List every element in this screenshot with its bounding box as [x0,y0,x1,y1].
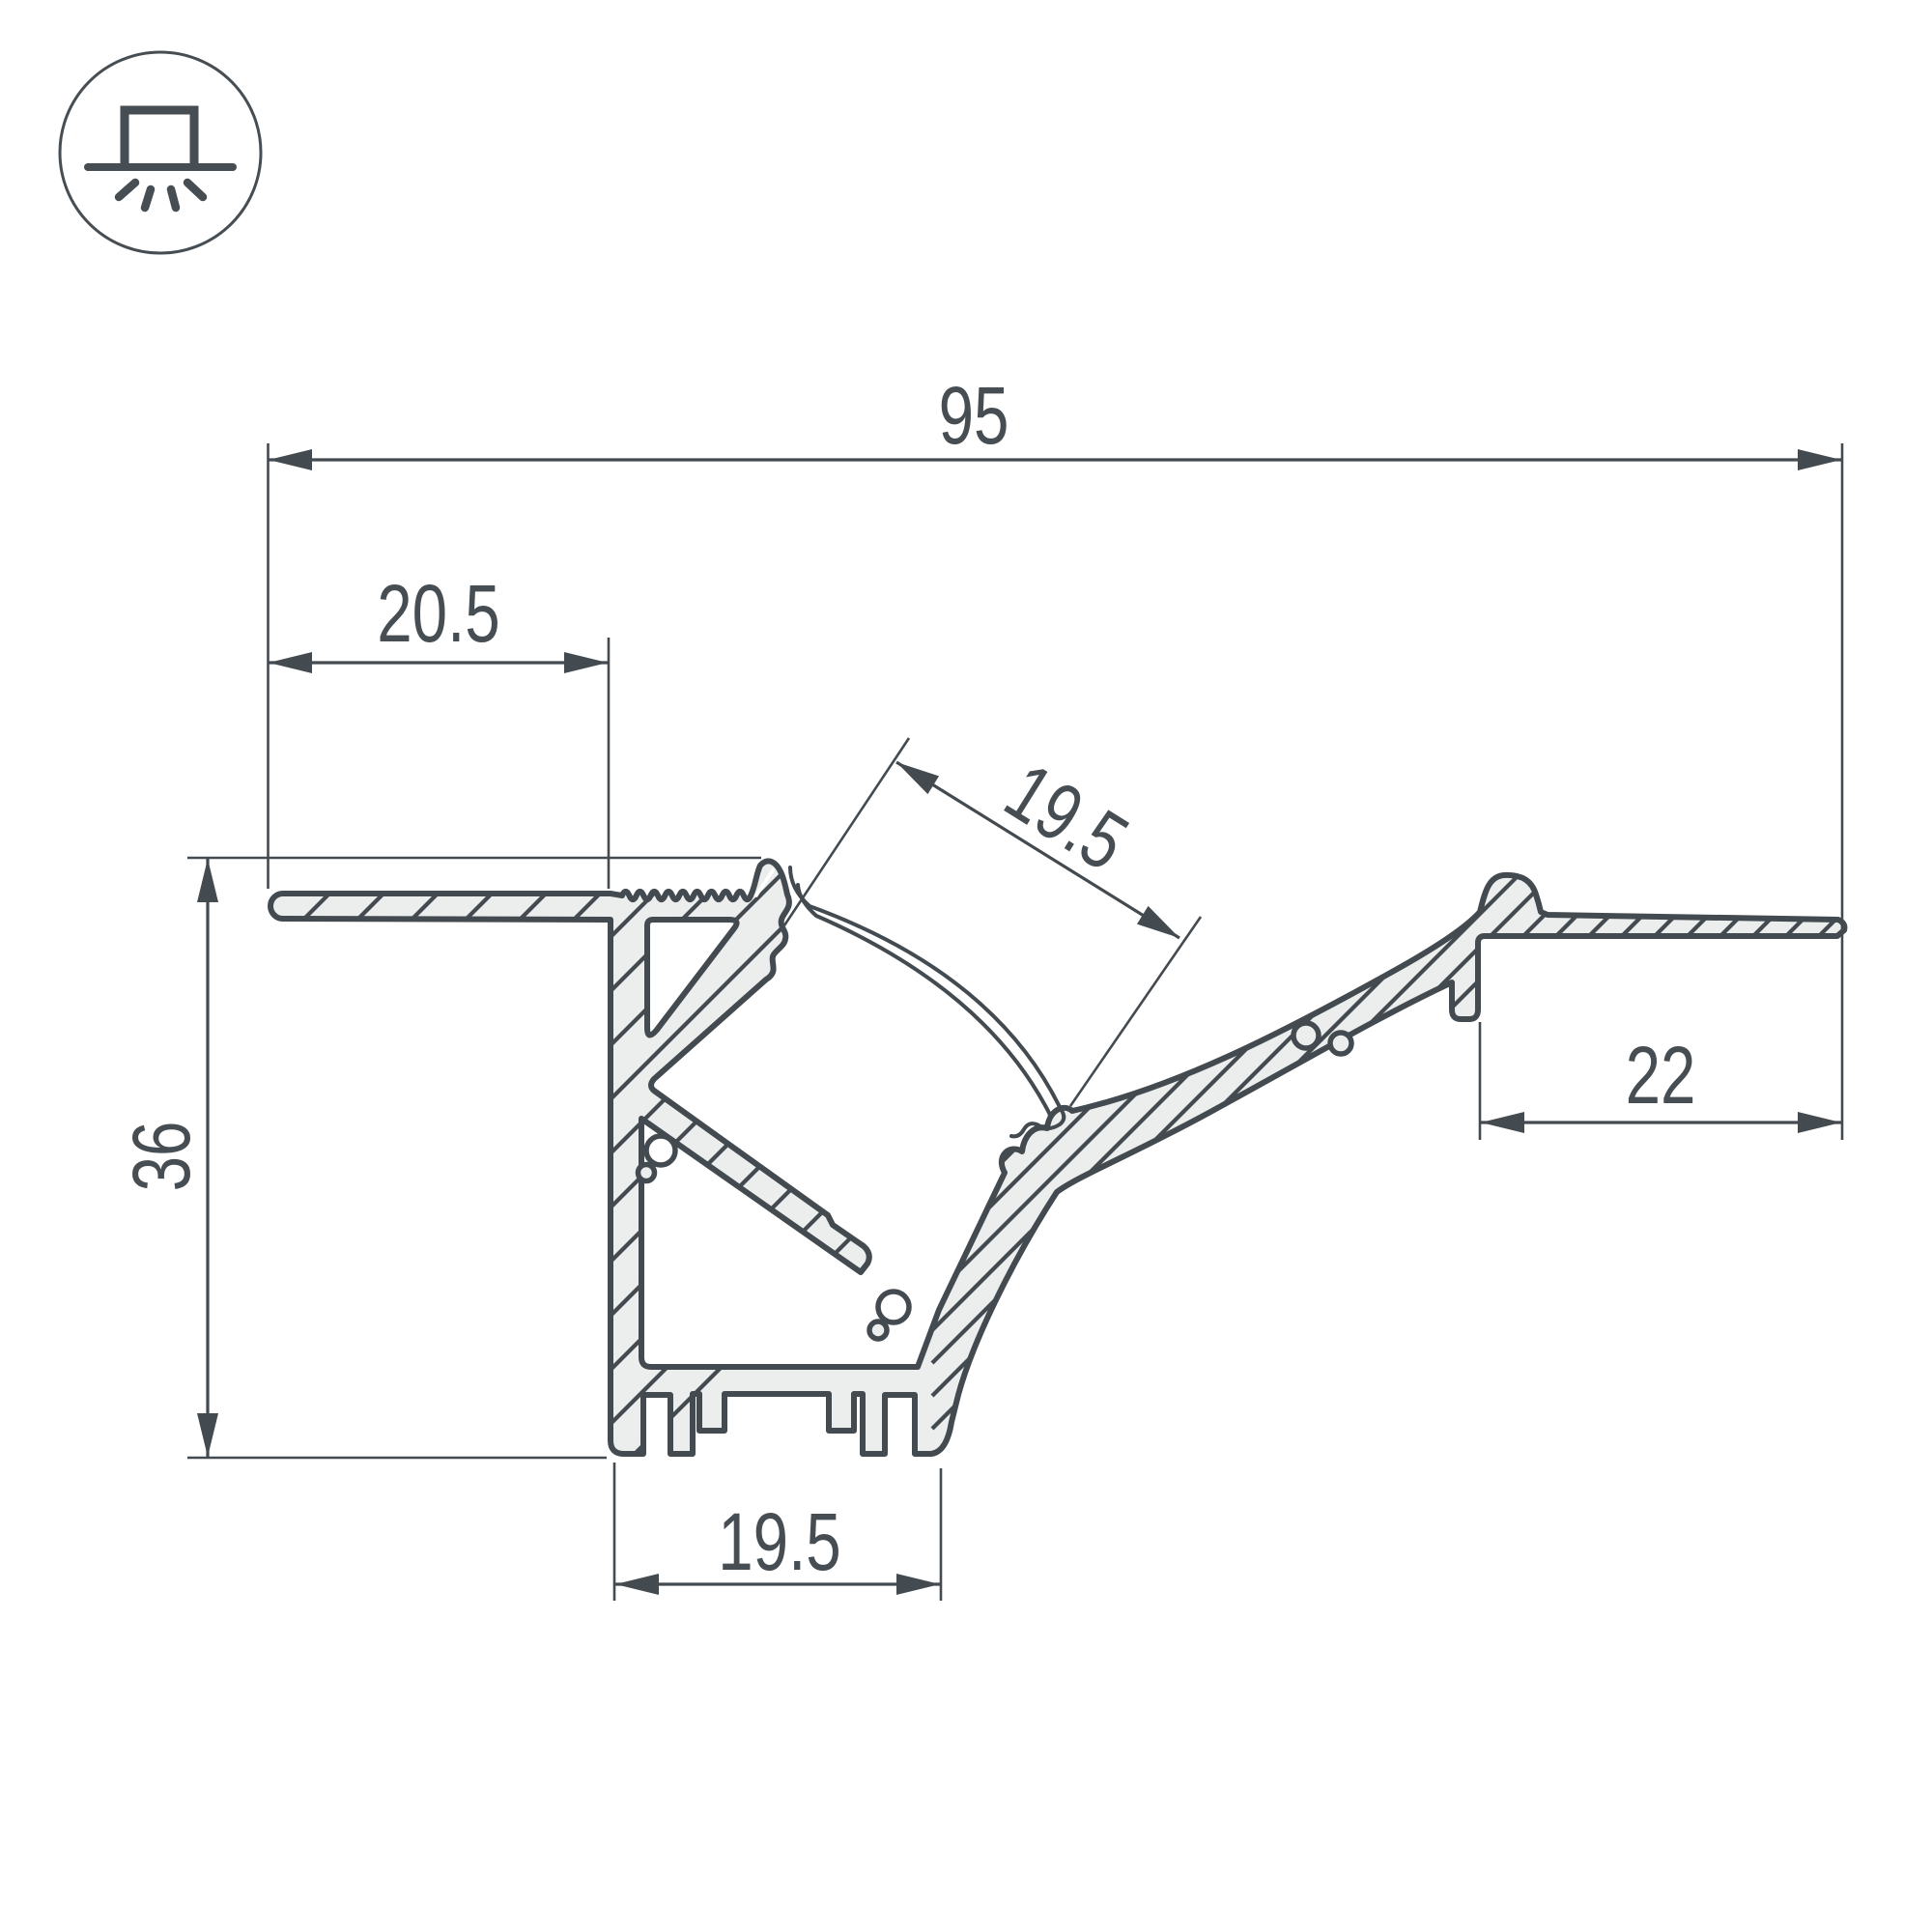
svg-text:95: 95 [939,370,1009,461]
svg-text:22: 22 [1626,1030,1696,1121]
svg-text:19.5: 19.5 [718,1496,841,1587]
svg-text:20.5: 20.5 [377,568,500,659]
svg-text:36: 36 [116,1122,207,1192]
